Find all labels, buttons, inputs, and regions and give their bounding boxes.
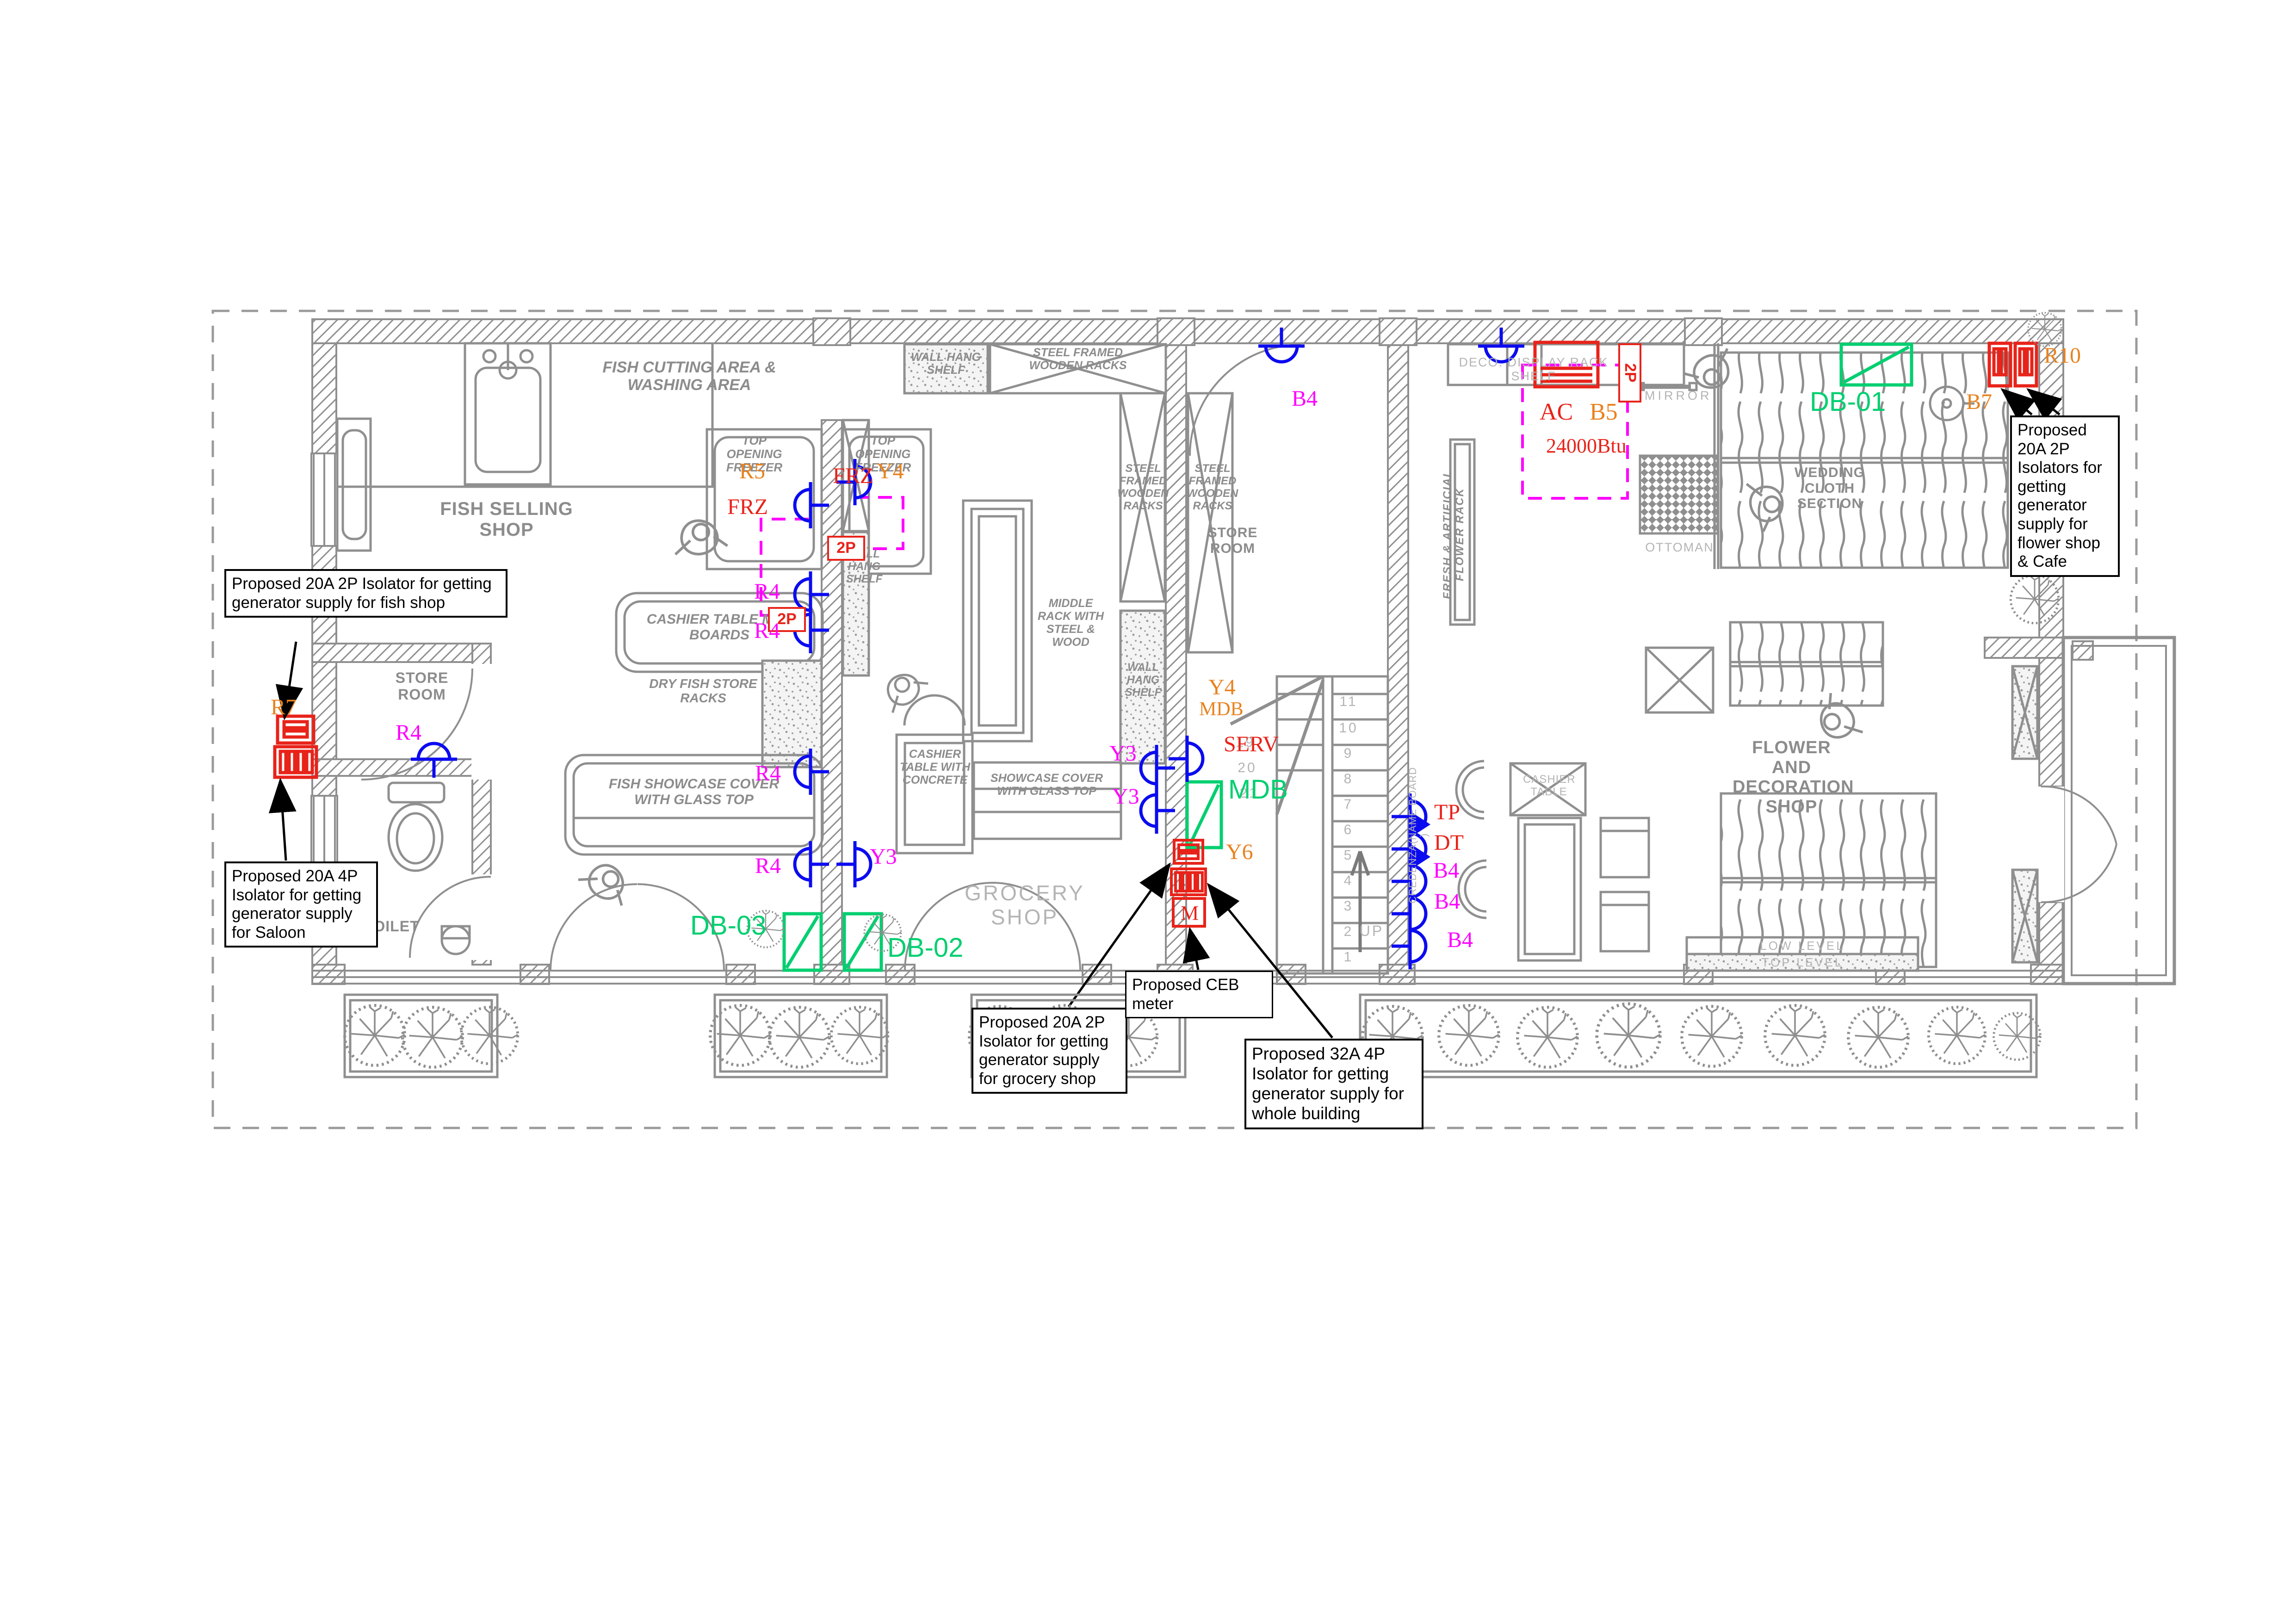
flower-shop-fixtures: [1448, 343, 2037, 971]
storeroom-rack: [1188, 393, 1232, 652]
note-grocery: Proposed 20A 2P Isolator for getting gen…: [972, 1008, 1127, 1094]
stairs: [1231, 676, 1388, 973]
note-whole-building: Proposed 32A 4P Isolator for getting gen…: [1244, 1039, 1423, 1129]
tag-2p-box-1: 2P: [768, 607, 806, 632]
terrace: [2063, 638, 2174, 984]
note-flower-cafe: Proposed 20A 2P Isolators for getting ge…: [2010, 415, 2120, 577]
toilet-fixtures: [389, 783, 470, 954]
note-saloon: Proposed 20A 4P Isolator for getting gen…: [224, 861, 378, 948]
tag-2p-box-2: 2P: [827, 536, 865, 561]
grocery-fixtures: [843, 344, 1166, 853]
cafe-fixtures: [1456, 761, 1649, 960]
note-fish-shop: Proposed 20A 2P Isolator for getting gen…: [224, 569, 507, 618]
tag-2p-box-3: 2P: [1618, 343, 1641, 403]
ac-unit: [1535, 342, 1598, 387]
circuit-dashed: [761, 365, 1628, 615]
isolator-icon: [275, 716, 316, 777]
note-ceb-meter: Proposed CEB meter: [1125, 971, 1273, 1018]
plan-linework: [0, 0, 2296, 1623]
data-point-icon: [1412, 812, 1430, 869]
floor-plan: FISH SELLING SHOP FISH CUTTING AREA & WA…: [0, 0, 2296, 1623]
